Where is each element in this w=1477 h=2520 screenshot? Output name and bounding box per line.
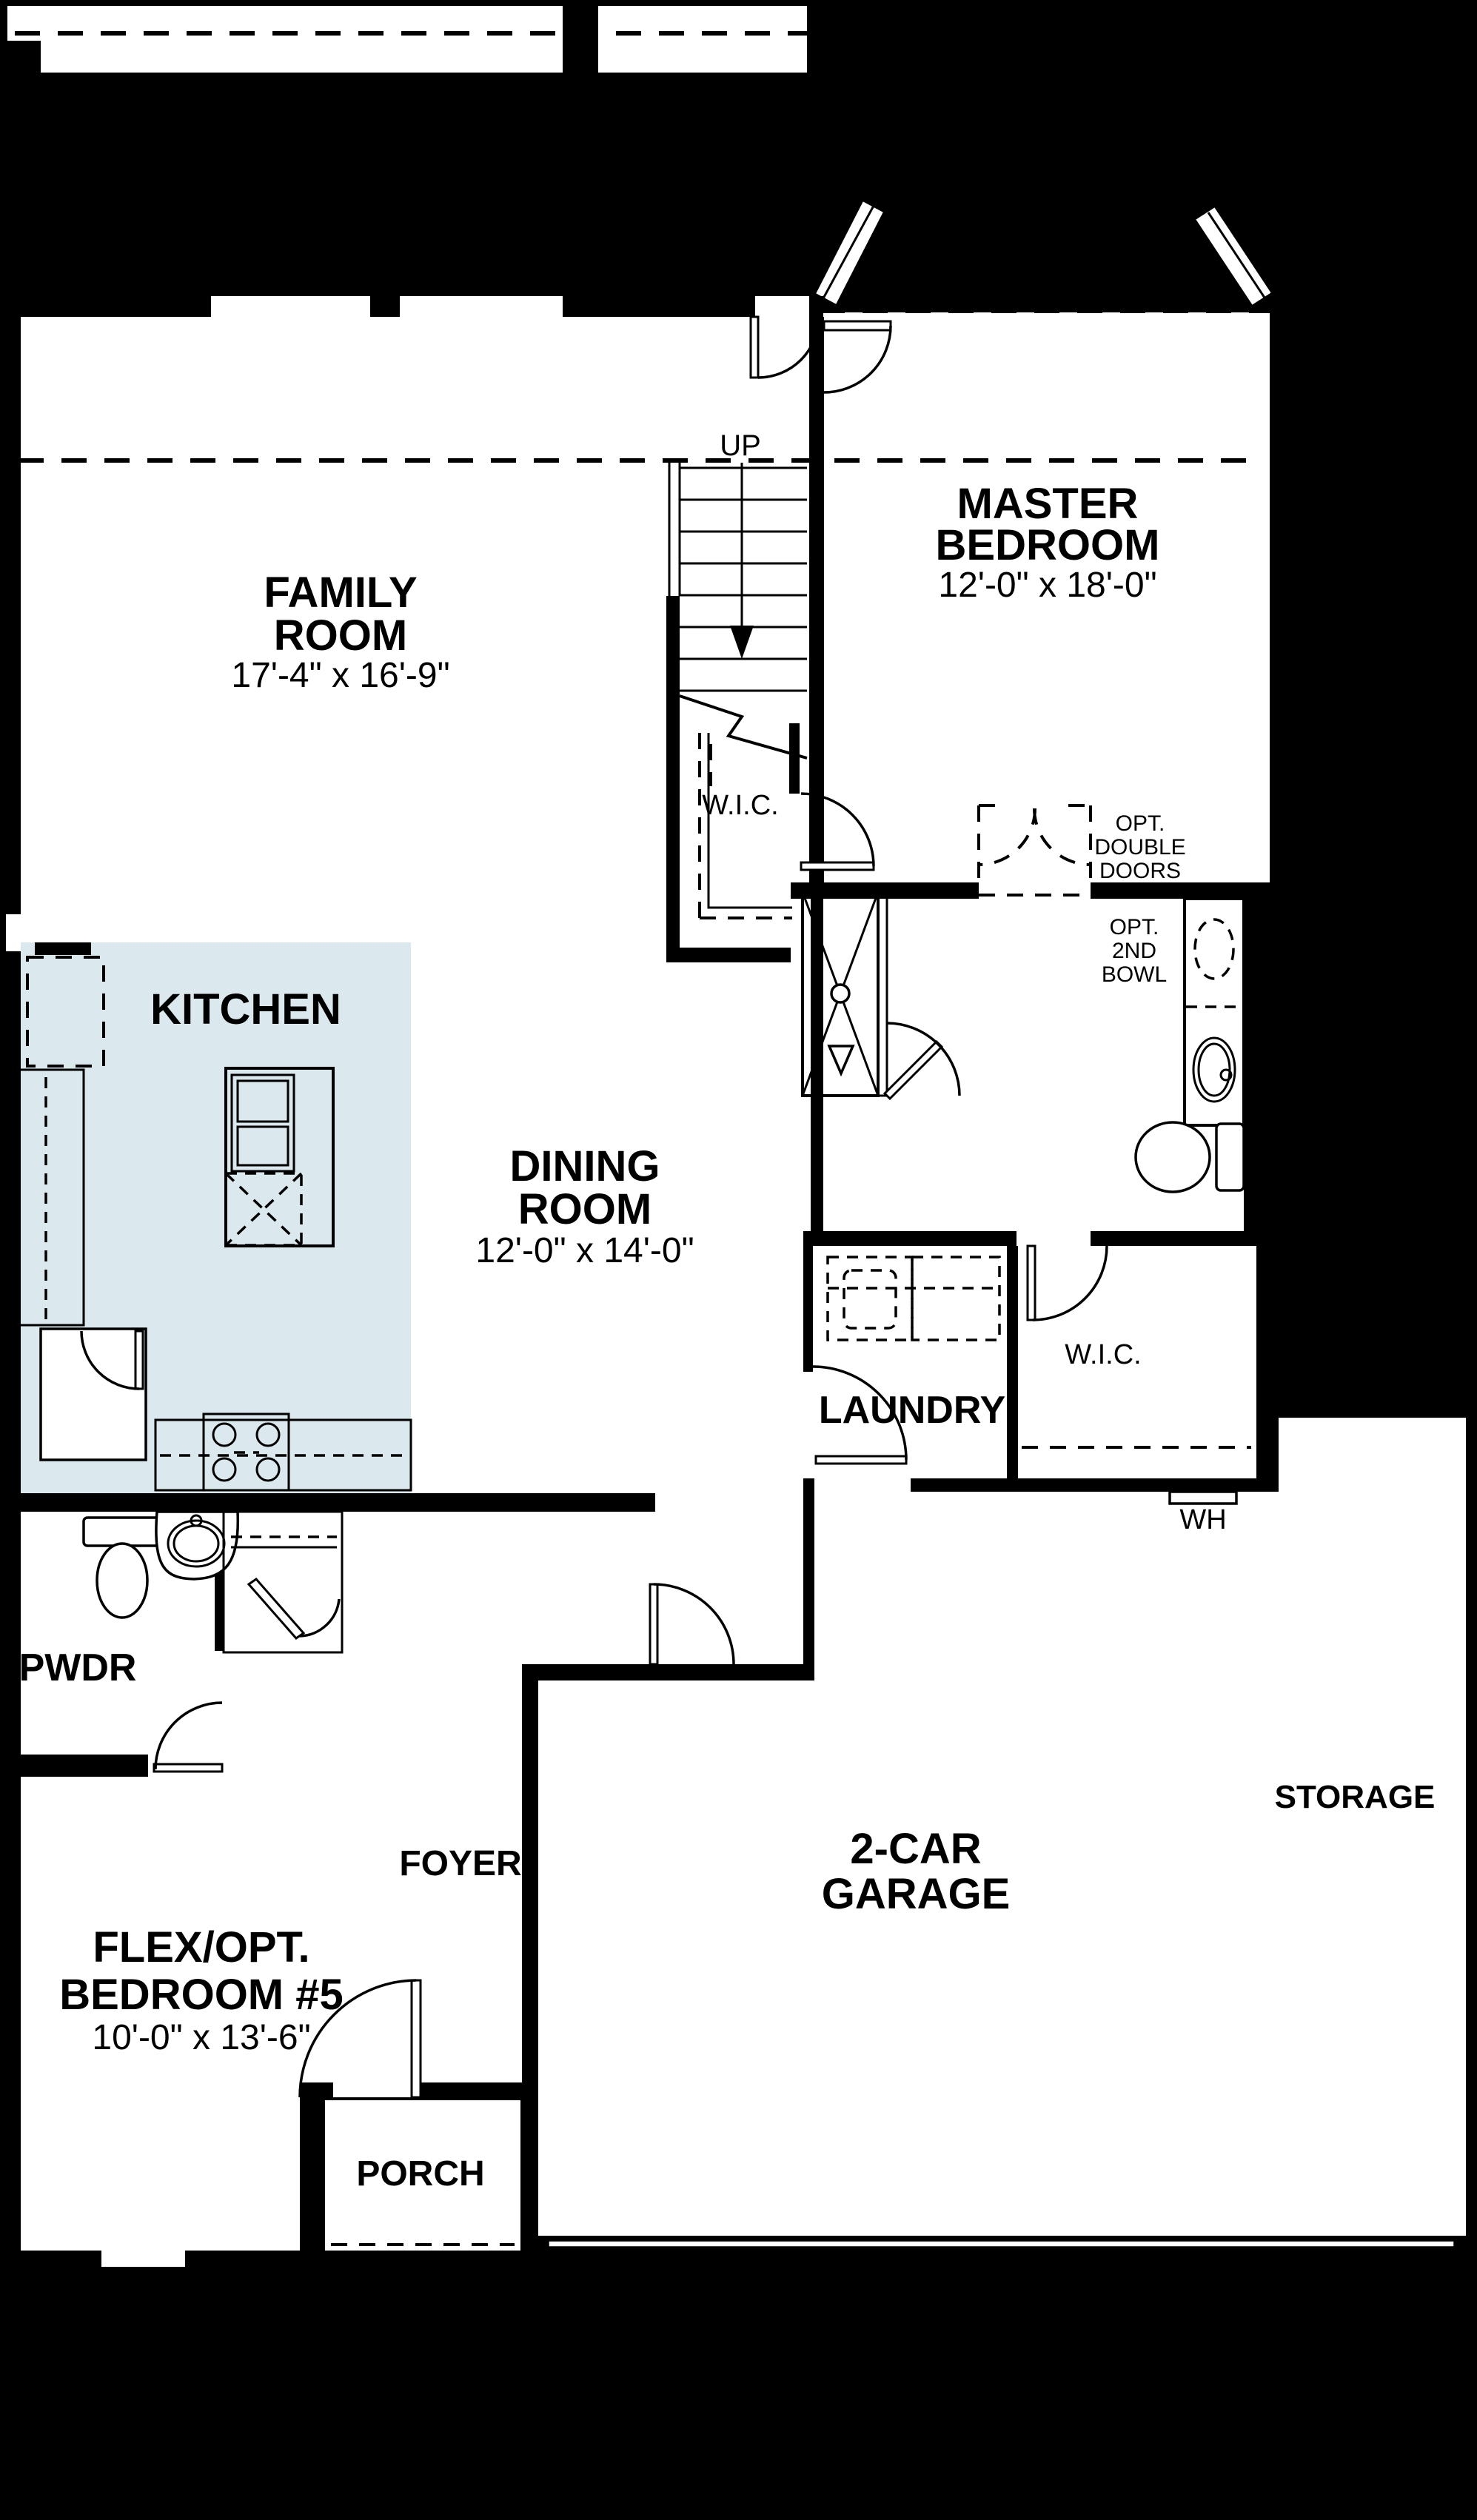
garage-label2: GARAGE [822,1870,1011,1918]
opt-2nd-bowl-label3: BOWL [1102,962,1167,987]
pwdr-toilet-bowl [97,1544,147,1618]
covered-patio-label: COVERED [315,121,498,162]
dining-room-dims: 12'-0" x 14'-0" [475,1231,694,1270]
master-bedroom-label2: BEDROOM [936,521,1160,569]
family-room-label2: ROOM [274,611,407,660]
front-door-leaf [412,1980,421,2097]
hall-wic-door-leaf [1028,1246,1035,1320]
hall-wic-label: W.I.C. [1065,1339,1141,1370]
laundry-door-leaf [816,1456,906,1464]
pwdr-door-leaf [154,1764,222,1772]
floor-plan-drawing: COVERED PATIO FAMILY ROOM 17'-4" x 16'-9… [0,0,1477,2520]
garage-overhead-door [548,2240,1455,2248]
flex-bedroom-label2: BEDROOM #5 [59,1971,344,2019]
water-heater-label: WH [1179,1504,1226,1535]
family-room-dims: 17'-4" x 16'-9" [231,656,449,695]
opt-2nd-bowl-label2: 2ND [1112,939,1156,963]
dining-room-label2: ROOM [518,1185,652,1233]
floor-plan: COVERED PATIO FAMILY ROOM 17'-4" x 16'-9… [0,0,1477,2520]
master-wic-label: W.I.C. [702,790,778,821]
opt-double-doors-label3: DOORS [1099,859,1181,883]
pantry [41,1329,146,1460]
garage-label: 2-CAR [850,1825,981,1873]
master-toilet-tank [1216,1124,1244,1190]
stairs-up-label: UP [720,429,761,462]
kitchen-label: KITCHEN [150,985,341,1033]
pantry-door-leaf [135,1331,143,1389]
wic-door-leaf [801,862,874,870]
master-toilet-bowl [1136,1122,1210,1192]
opt-2nd-bowl-label: OPT. [1110,915,1159,939]
water-heater [1170,1492,1236,1504]
foyer-label: FOYER [399,1844,521,1883]
storage-label: STORAGE [1275,1779,1436,1815]
garage-door-leaf [650,1584,657,1664]
master-bedroom-dims: 12'-0" x 18'-0" [938,566,1156,605]
porch-label: PORCH [356,2154,484,2194]
opt-double-doors-label2: DOUBLE [1094,835,1185,859]
flex-bedroom-window [101,2251,185,2267]
kitchen-side-window [6,914,21,951]
patio-door-opening [755,296,809,317]
flex-bedroom-label: FLEX/OPT. [93,1923,309,1971]
pwdr-toilet-tank [84,1518,161,1546]
shower-drain [831,985,849,1002]
patio-window-1 [211,296,370,317]
opt-double-doors-label: OPT. [1116,811,1165,836]
covered-patio-label2: PATIO [353,161,460,202]
patio-window-2 [400,296,563,317]
flex-bedroom-dims: 10'-0" x 13'-6" [92,2018,310,2057]
dining-room-label: DINING [510,1142,660,1190]
pwdr-label: PWDR [19,1646,137,1689]
laundry-label: LAUNDRY [819,1389,1005,1432]
family-room-label: FAMILY [264,569,417,617]
